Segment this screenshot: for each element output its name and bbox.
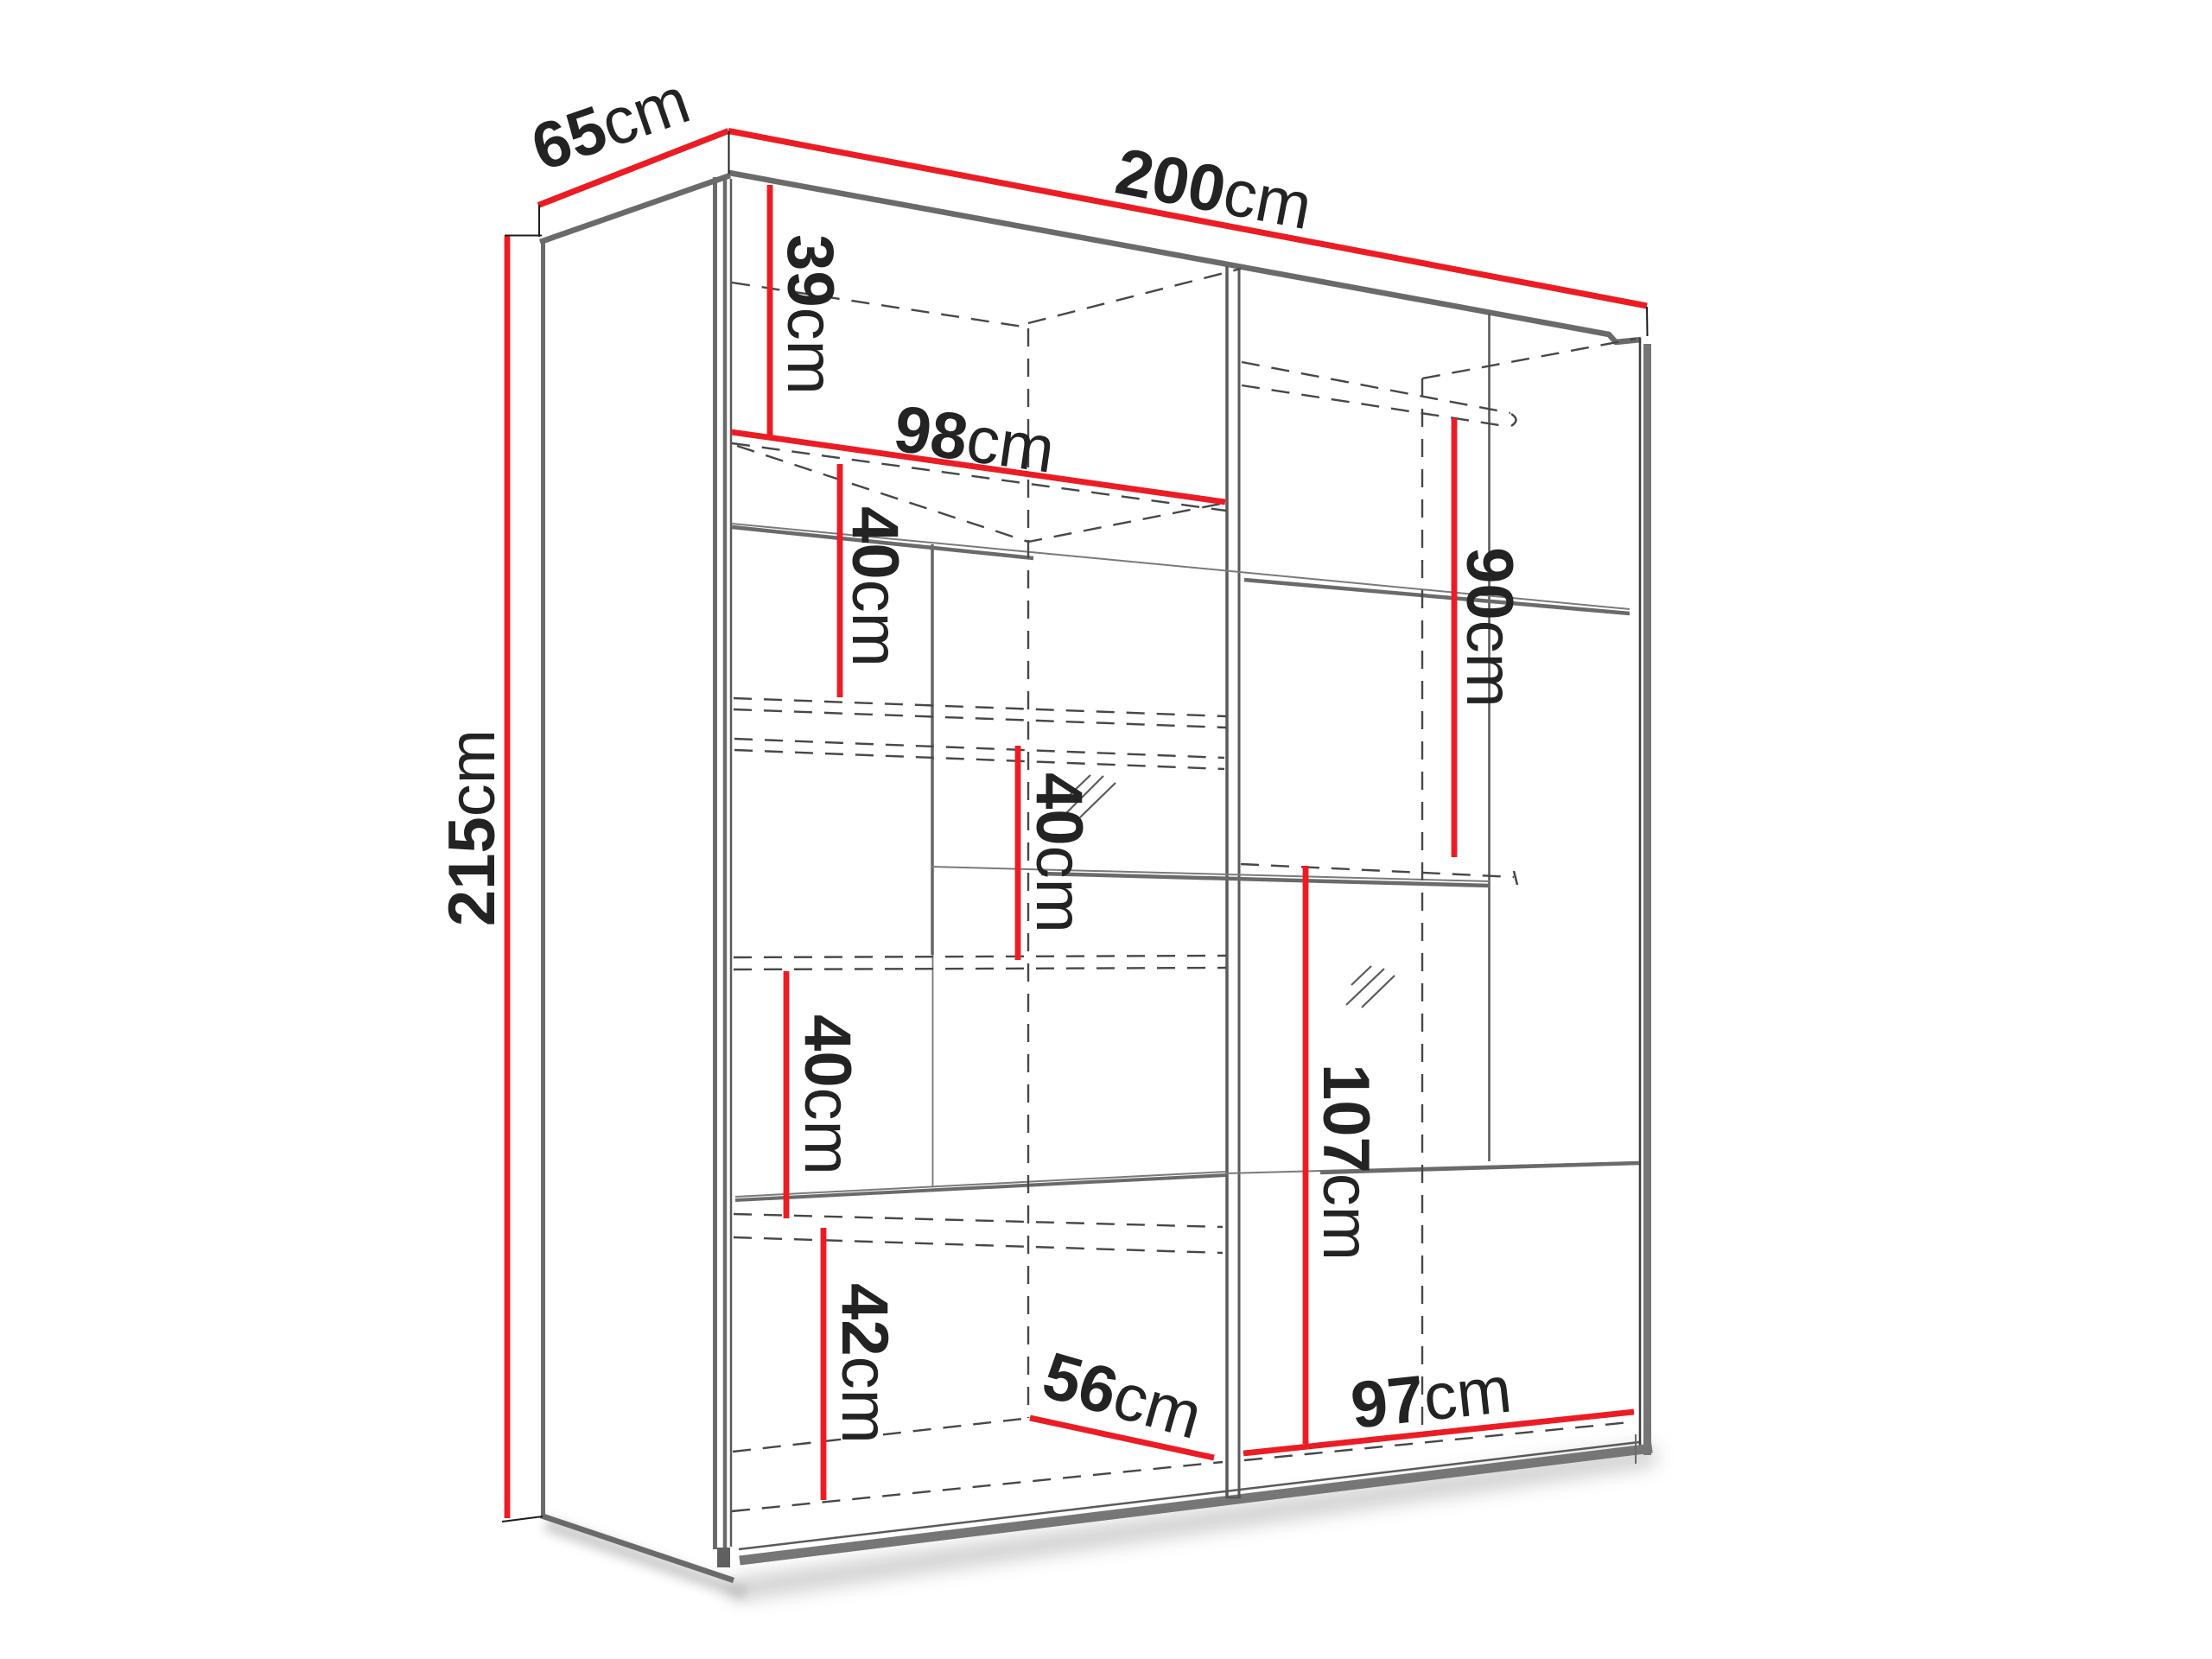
svg-text:215cm: 215cm: [435, 729, 509, 926]
svg-text:40cm: 40cm: [791, 1014, 864, 1175]
svg-text:40cm: 40cm: [1022, 772, 1096, 933]
svg-text:90cm: 90cm: [1452, 547, 1526, 708]
svg-text:42cm: 42cm: [828, 1283, 901, 1444]
svg-text:40cm: 40cm: [838, 506, 912, 667]
svg-text:39cm: 39cm: [773, 234, 847, 395]
svg-text:107cm: 107cm: [1309, 1064, 1382, 1261]
